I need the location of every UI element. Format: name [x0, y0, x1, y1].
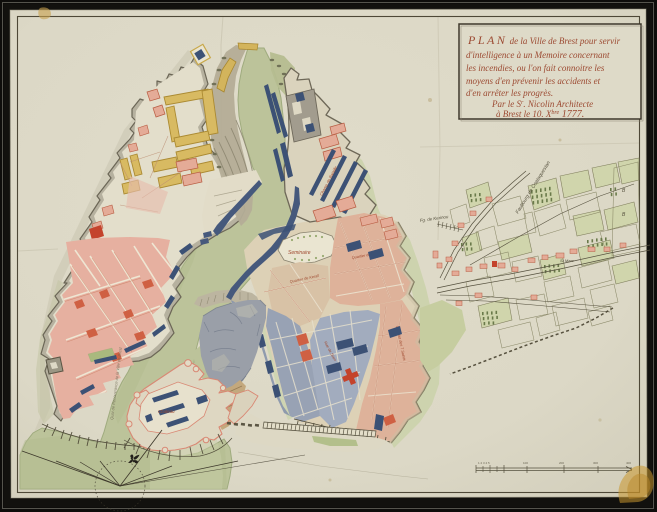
svg-text:St Marc: St Marc: [560, 258, 574, 263]
svg-text:à Brest le 10. Xbre 1777.: à Brest le 10. Xbre 1777.: [496, 109, 584, 120]
svg-text:PLAN de la Ville de Brest pour: PLAN de la Ville de Brest pour servir: [467, 33, 621, 47]
svg-text:les incendies, ou l'on fait co: les incendies, ou l'on fait connoitre le…: [466, 63, 605, 73]
svg-text:400: 400: [626, 461, 631, 465]
svg-text:200: 200: [559, 461, 564, 465]
svg-text:1 2 3 4 5: 1 2 3 4 5: [478, 461, 490, 465]
svg-text:d'en arrêter les progrès.: d'en arrêter les progrès.: [466, 88, 553, 98]
svg-text:Seminaire: Seminaire: [288, 250, 311, 256]
svg-text:100: 100: [523, 461, 528, 465]
svg-text:d'intelligence à un Memoire co: d'intelligence à un Memoire concernant: [466, 50, 610, 60]
svg-text:Chateau: Chateau: [158, 409, 175, 414]
svg-text:moyens d'en prévenir les accid: moyens d'en prévenir les accidents et: [466, 76, 601, 86]
svg-text:Par le Sr. Nicolin Architecte: Par le Sr. Nicolin Architecte: [491, 99, 593, 109]
svg-text:300: 300: [593, 461, 598, 465]
